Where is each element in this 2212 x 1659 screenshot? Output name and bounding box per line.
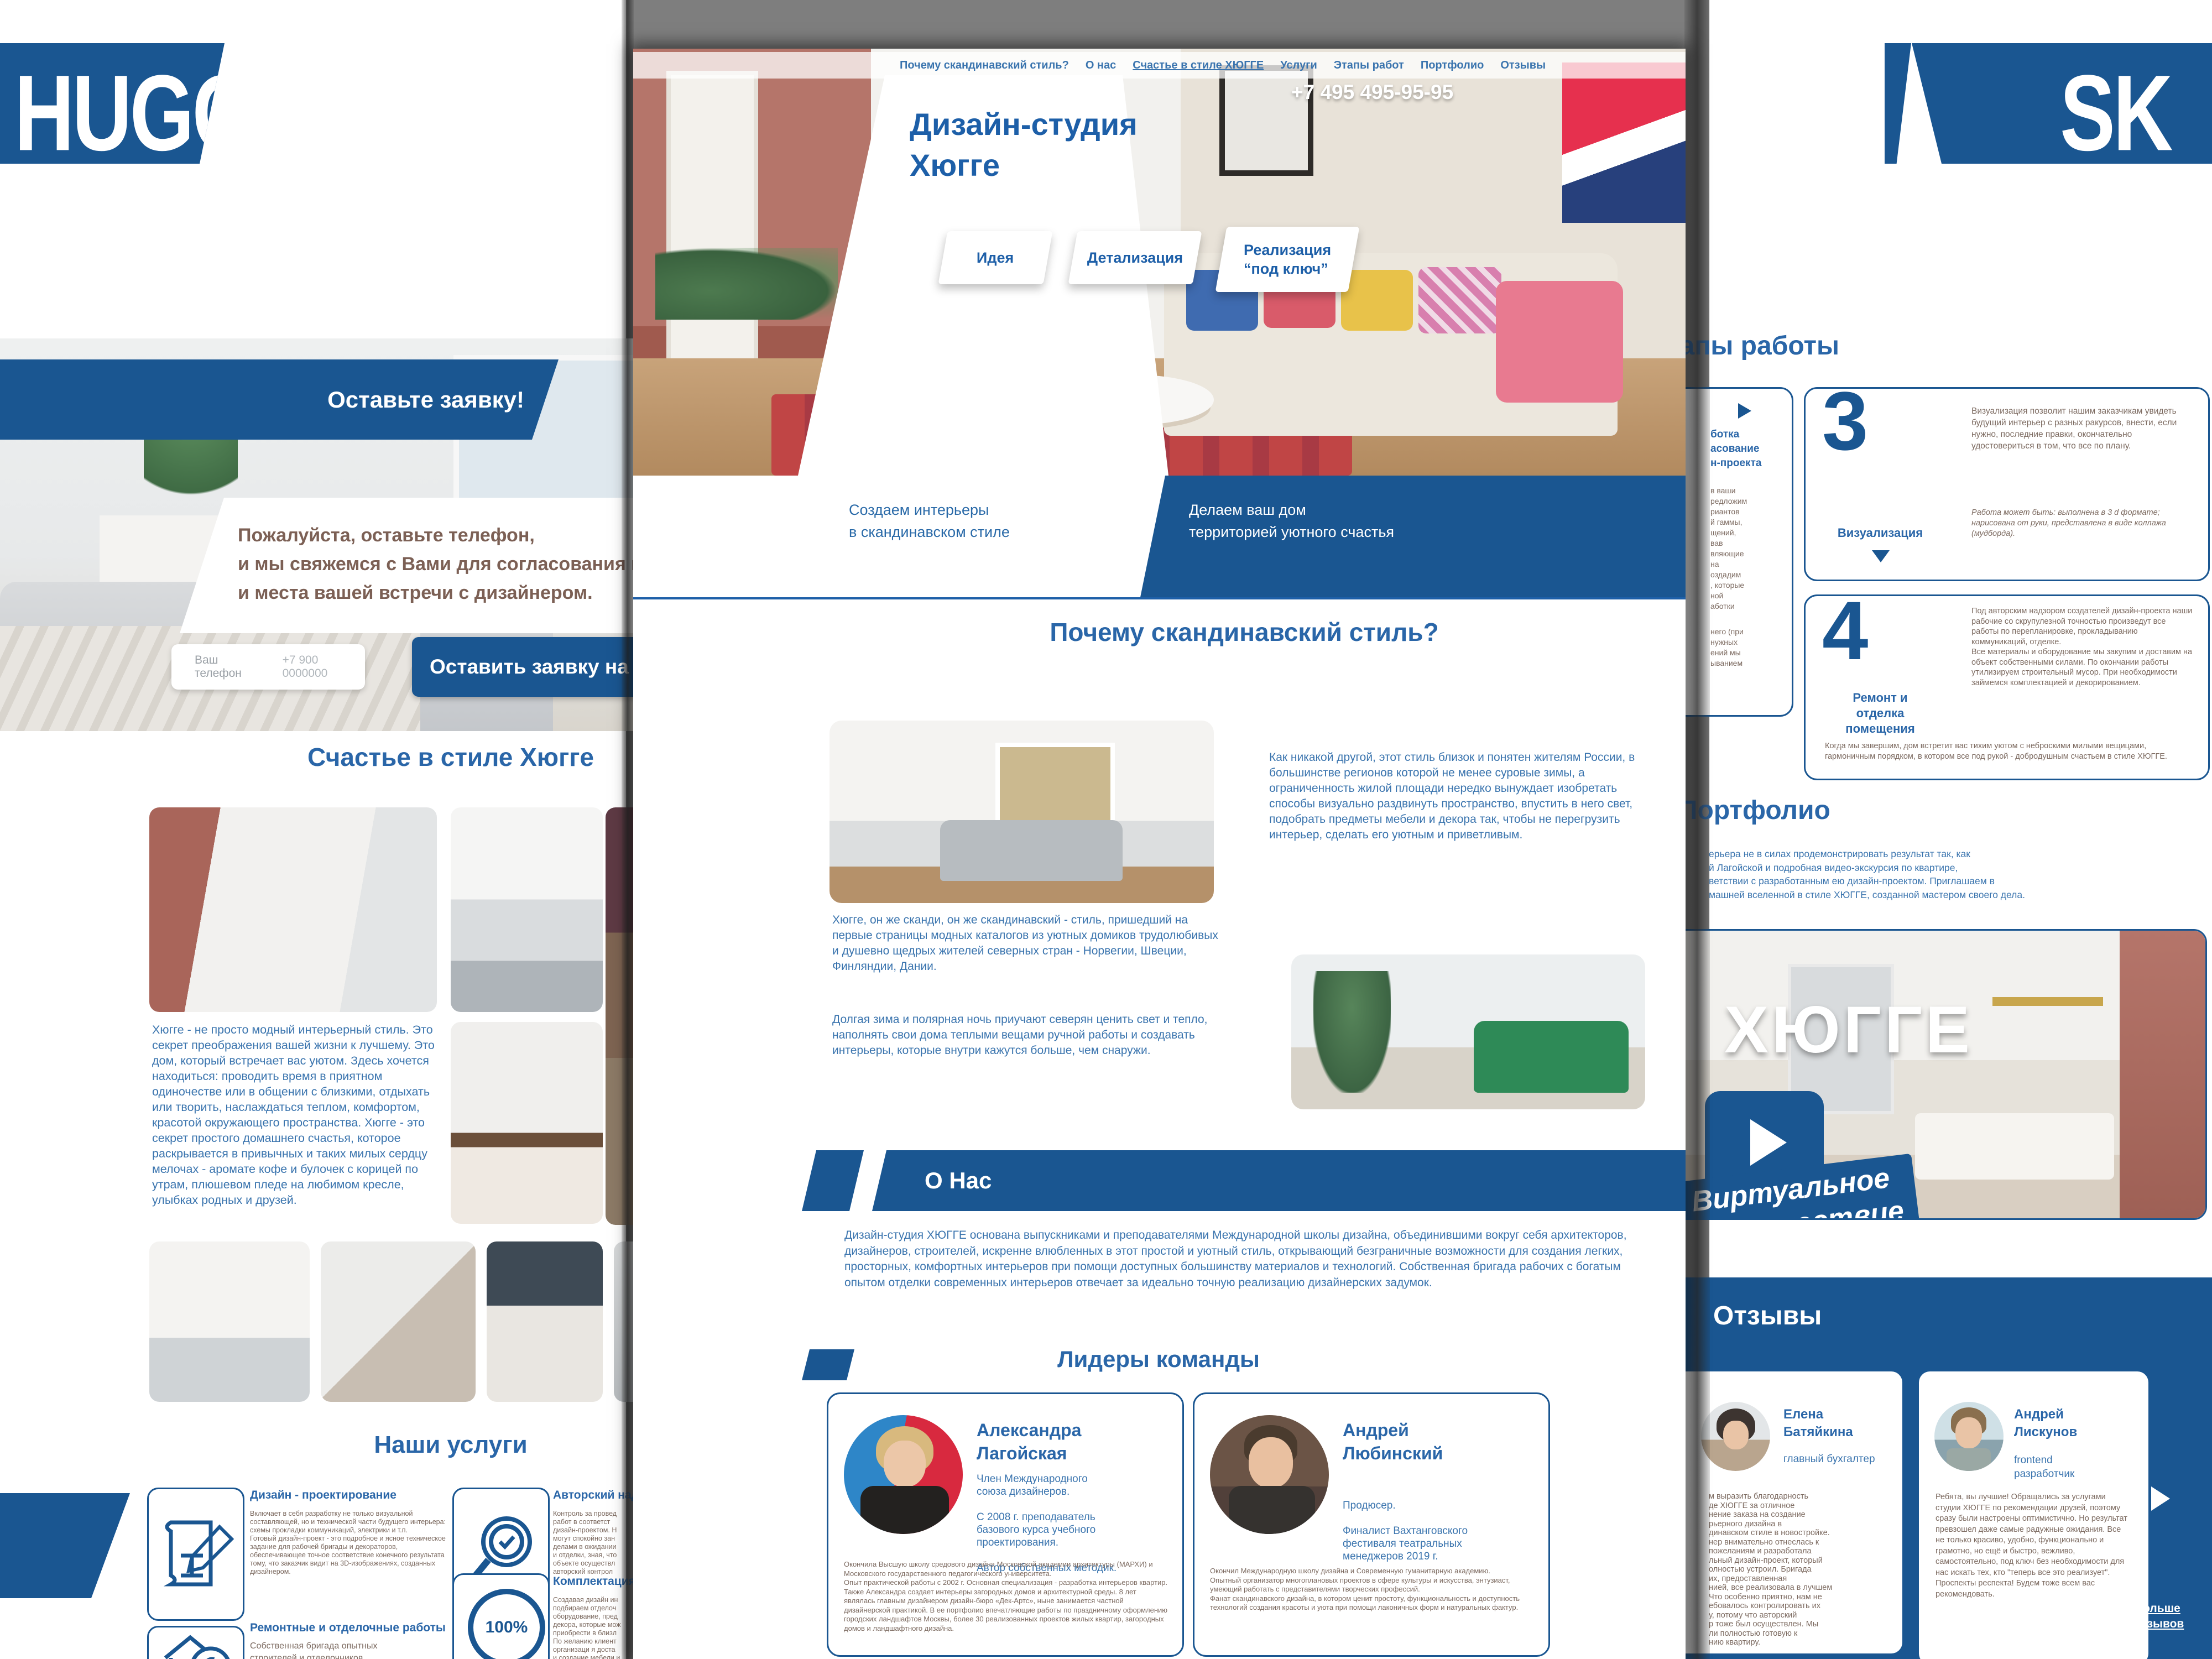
review-text-fragment: м выразить благодарность де ХЮГГЕ за отл… [1709,1492,1891,1647]
hero-photo: Почему скандинавский стиль? О нас Счасть… [633,49,1686,476]
service-title: Дизайн - проектирование [250,1489,397,1502]
stage-4-card: 4 Ремонт и отделка помещения Под авторск… [1804,594,2210,780]
badge-100: 100% [486,1618,528,1637]
member-name: Андрей Любинский [1343,1418,1443,1465]
procurement-icon: 100% [452,1573,550,1659]
page-shadow-left [622,0,634,1659]
why-text-left-2: Долгая зима и полярная ночь приучают сев… [832,1012,1219,1058]
why-text-left-1: Хюгге, он же сканди, он же скандинавский… [832,912,1219,974]
review-card: Андрей Лискунов frontend разработчик Реб… [1919,1371,2148,1659]
reviewer-name: Елена Батяйкина [1783,1406,1853,1441]
subbanner-right-text: Делаем ваш дом территорией уютного счаст… [1189,499,1394,543]
member-bio: Окончила Высшую школу средового дизайна … [844,1560,1169,1633]
stage-4-text: Под авторским надзором создателей дизайн… [1971,606,2193,688]
member-roles: Продюсер. Финалист Вахтанговского фестив… [1343,1499,1468,1563]
logo-banner-left: HUGGE [0,43,225,164]
team-heading: Лидеры команды [816,1346,1501,1373]
design-mockup-canvas: HUGGE Оставьте заявку! Пожалуйста, остав… [0,0,2212,1659]
renovation-icon [147,1626,244,1659]
happiness-text: Хюгге - не просто модный интерьерный сти… [152,1022,442,1208]
nav-item-reviews[interactable]: Отзывы [1500,59,1546,72]
red-painting [1562,62,1686,223]
stage-3-card: 3 Визуализация Визуализация позволит наш… [1804,387,2210,581]
nav-item-stages[interactable]: Этапы работ [1334,59,1404,72]
video-title: ХЮГГЕ [1724,992,1973,1068]
pillow [1418,267,1501,333]
service-text: Включает в себя разработку не только виз… [250,1510,446,1576]
nav-item-portfolio[interactable]: Портфолио [1421,59,1484,72]
balcony-door [666,71,758,367]
phone-input-placeholder: +7 900 0000000 [283,654,365,680]
request-banner-text: Оставьте заявку! [327,387,524,413]
left-page: HUGGE Оставьте заявку! Пожалуйста, остав… [0,0,626,1659]
gallery-photo [451,1022,603,1224]
member-photo [844,1415,963,1534]
logo-left-text: HUGGE [14,51,307,175]
member-photo [1210,1415,1329,1534]
right-page: SK Этапы работы ботка асование н-проекта… [1709,0,2212,1659]
phone-input[interactable]: Ваш телефон +7 900 0000000 [171,644,365,690]
carousel-next-icon[interactable] [2151,1486,2170,1511]
reviews-heading: Отзывы [1713,1301,1822,1331]
stage-3-text: Визуализация позволит нашим заказчикам у… [1971,405,2193,452]
portfolio-intro-fragment: ерьера не в силах продемонстрировать рез… [1709,847,2118,901]
review-text: Ребята, вы лучшие! Обращались за услугам… [1936,1492,2132,1600]
turnkey-button[interactable]: Реализация “под ключ” [1215,227,1360,292]
logo-banner-right-slice [1885,43,1911,164]
member-bio: Окончил Международную школу дизайна и Со… [1210,1567,1535,1613]
nav-item-why[interactable]: Почему скандинавский стиль? [900,59,1069,72]
logo-right-text: SK [2060,51,2171,175]
gallery-photo [487,1241,603,1402]
turnkey-button-label: Реализация “под ключ” [1244,241,1331,278]
subbanner-left-text: Создаем интерьеры в скандинавском стиле [849,499,1010,543]
arrow-down-icon [1872,550,1890,562]
gallery-photo [149,1241,310,1402]
nav-item-happiness[interactable]: Счастье в стиле ХЮГГЕ [1133,59,1264,72]
chandelier [1992,997,2103,1006]
phone-number[interactable]: +7 495 495-95-95 [1291,81,1453,104]
detailing-button-label: Детализация [1087,249,1183,267]
pink-throw [1496,281,1623,403]
stage-2-title-fragment: ботка асование н-проекта [1710,427,1761,471]
top-navigation: Почему скандинавский стиль? О нас Счасть… [633,52,1686,79]
stage-4-number: 4 [1822,583,1868,679]
reviewer-role: frontend разработчик [2014,1453,2074,1481]
service-title: Ремонтные и отделочные работы [250,1621,446,1635]
more-reviews-link[interactable]: Больше отзывов [2135,1601,2184,1632]
main-page: Почему скандинавский стиль? О нас Счасть… [633,49,1686,1659]
idea-button-label: Идея [977,249,1014,267]
decor-parallelogram [0,1493,130,1598]
stage-4-outro: Когда мы завершим, дом встретит вас тихи… [1825,741,2190,762]
service-text: Собственная бригада опытных строителей и… [250,1640,449,1659]
nav-item-services[interactable]: Услуги [1280,59,1317,72]
play-icon [1750,1119,1787,1166]
page-shadow-right [1684,0,1710,1659]
submit-request-label: Оставить заявку на [430,655,629,679]
team-card: Андрей Любинский Продюсер. Финалист Вахт… [1193,1392,1550,1657]
why-photo-1 [830,721,1214,903]
balcony-plants [655,248,838,320]
about-text: Дизайн-студия ХЮГГЕ основана выпускникам… [844,1228,1657,1291]
reviewer-role: главный бухгалтер [1783,1453,1875,1465]
pillow [1341,270,1413,331]
reviewer-avatar [1701,1402,1770,1471]
subbanner-blue [633,476,1686,597]
member-name: Александра Лагойская [977,1418,1081,1465]
stage-2-text-fragment-2: него (при нужных ений мы ыванием [1710,627,1744,669]
why-heading: Почему скандинавский стиль? [816,617,1673,647]
detailing-button[interactable]: Детализация [1068,231,1202,284]
stage-4-label: Ремонт и отделка помещения [1806,690,1955,737]
about-heading: О Нас [925,1167,992,1194]
why-photo-2 [1291,954,1645,1109]
hero-subbanner: Создаем интерьеры в скандинавском стиле … [633,476,1686,599]
stage-3-note: Работа может быть: выполнена в 3 d форма… [1971,508,2193,539]
why-text-right: Как никакой другой, этот стиль близок и … [1269,750,1651,843]
gallery-photo [451,807,603,1012]
reviewer-name: Андрей Лискунов [2014,1406,2077,1441]
request-banner: Оставьте заявку! [0,359,559,440]
design-project-icon [147,1488,244,1621]
phone-input-label: Ваш телефон [195,654,267,680]
idea-button[interactable]: Идея [938,231,1053,284]
gallery-photo [149,807,437,1012]
reviewer-avatar [1934,1402,2004,1471]
team-card: Александра Лагойская Член Международного… [827,1392,1184,1657]
about-banner-slice [802,1150,864,1211]
stage-3-label: Визуализация [1806,526,1955,540]
stage-2-text-fragment: в ваши редложим риантов й гаммы, щений, … [1710,486,1747,612]
member-roles: Член Международного союза дизайнеров. С … [977,1473,1117,1574]
nav-item-about[interactable]: О нас [1086,59,1116,72]
about-banner: О Нас [872,1150,1686,1211]
hero-title: Дизайн-студия Хюгге [910,104,1138,186]
arrow-right-icon [1738,403,1751,419]
stage-3-number: 3 [1822,373,1868,469]
logo-banner-right: SK [1905,43,2212,164]
gallery-photo [321,1241,476,1402]
